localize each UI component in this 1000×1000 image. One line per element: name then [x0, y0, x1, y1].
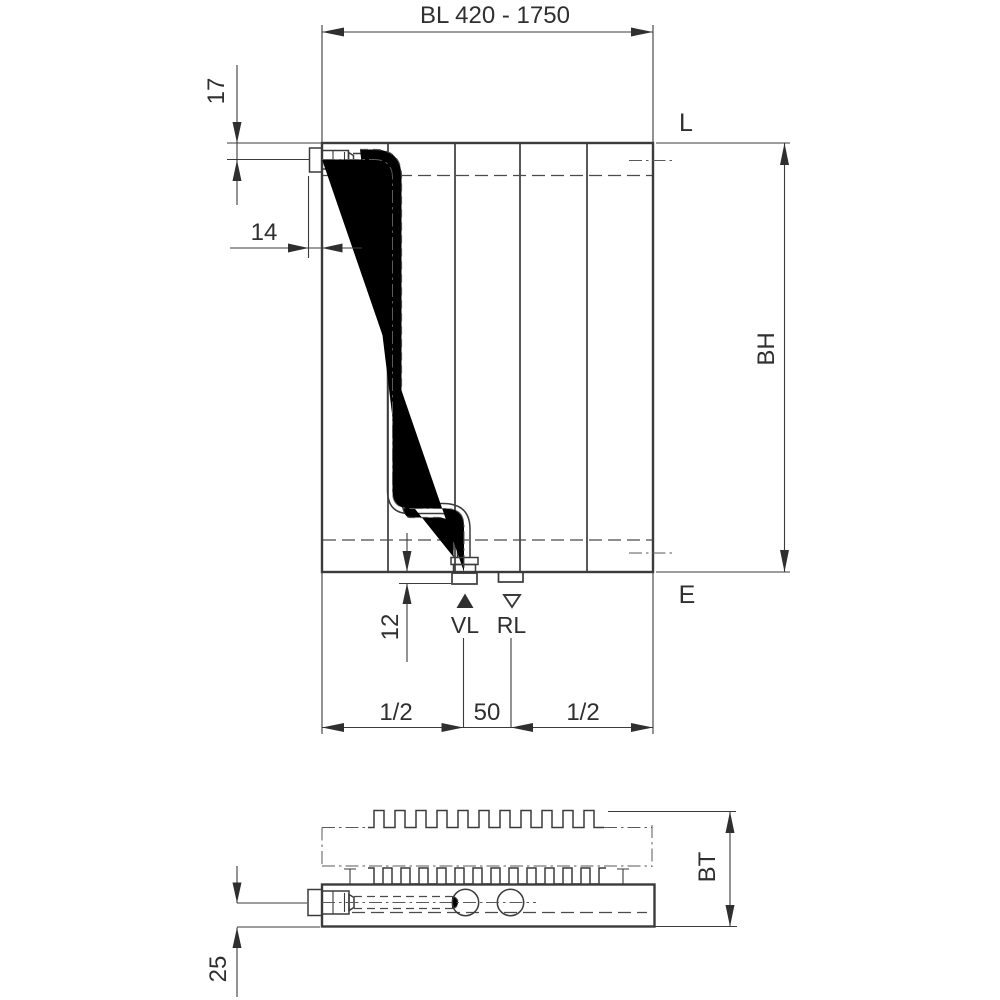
- dimension-bl-label: BL 420 - 1750: [420, 2, 570, 29]
- front-view: VL RL L E: [310, 109, 696, 638]
- technical-drawing-page: VL RL L E BL 420 - 1750 17 14: [0, 0, 1000, 1000]
- supply-flow-triangle-icon: [457, 594, 474, 609]
- dimension-half-right-label: 1/2: [566, 699, 599, 726]
- pipe-centerline: [322, 160, 464, 573]
- hidden-plate-outline: [322, 825, 652, 867]
- marker-L: L: [679, 109, 693, 137]
- dimension-half-left-label: 1/2: [379, 699, 412, 726]
- dimension-bl-width: BL 420 - 1750: [322, 2, 653, 143]
- fin-end-marks: [344, 869, 629, 884]
- dimension-bh-label: BH: [753, 332, 780, 365]
- radiator-dimension-drawing: VL RL L E BL 420 - 1750 17 14: [0, 0, 1000, 1000]
- dimension-14-label: 14: [251, 219, 278, 246]
- internal-supply-pipe: [322, 150, 470, 573]
- supply-label: VL: [451, 612, 479, 638]
- pipe-axis-marks: [629, 161, 673, 554]
- dimension-bt-label: BT: [694, 851, 721, 882]
- convector-fins-bottom-row: [368, 868, 606, 884]
- convector-fins-top-row: [368, 811, 604, 828]
- return-flow-triangle-icon: [504, 595, 520, 607]
- dimension-connection-chain: 1/2 50 1/2: [322, 572, 653, 734]
- dimension-50-label: 50: [474, 699, 501, 726]
- return-bottom-fitting: [499, 572, 524, 582]
- dimension-25-axis-offset: 25: [205, 866, 320, 997]
- return-label: RL: [497, 612, 527, 638]
- marker-E: E: [679, 581, 696, 609]
- dimension-17-top-offset: 17: [203, 65, 322, 205]
- bottom-header-body: [322, 885, 655, 927]
- dimension-25-label: 25: [205, 956, 232, 983]
- bottom-view: [308, 811, 655, 927]
- valve-connection-bottom-view: [308, 890, 484, 916]
- dimension-12-label: 12: [377, 614, 404, 641]
- dimension-17-label: 17: [203, 78, 230, 105]
- dimension-bh-height: BH: [656, 143, 790, 572]
